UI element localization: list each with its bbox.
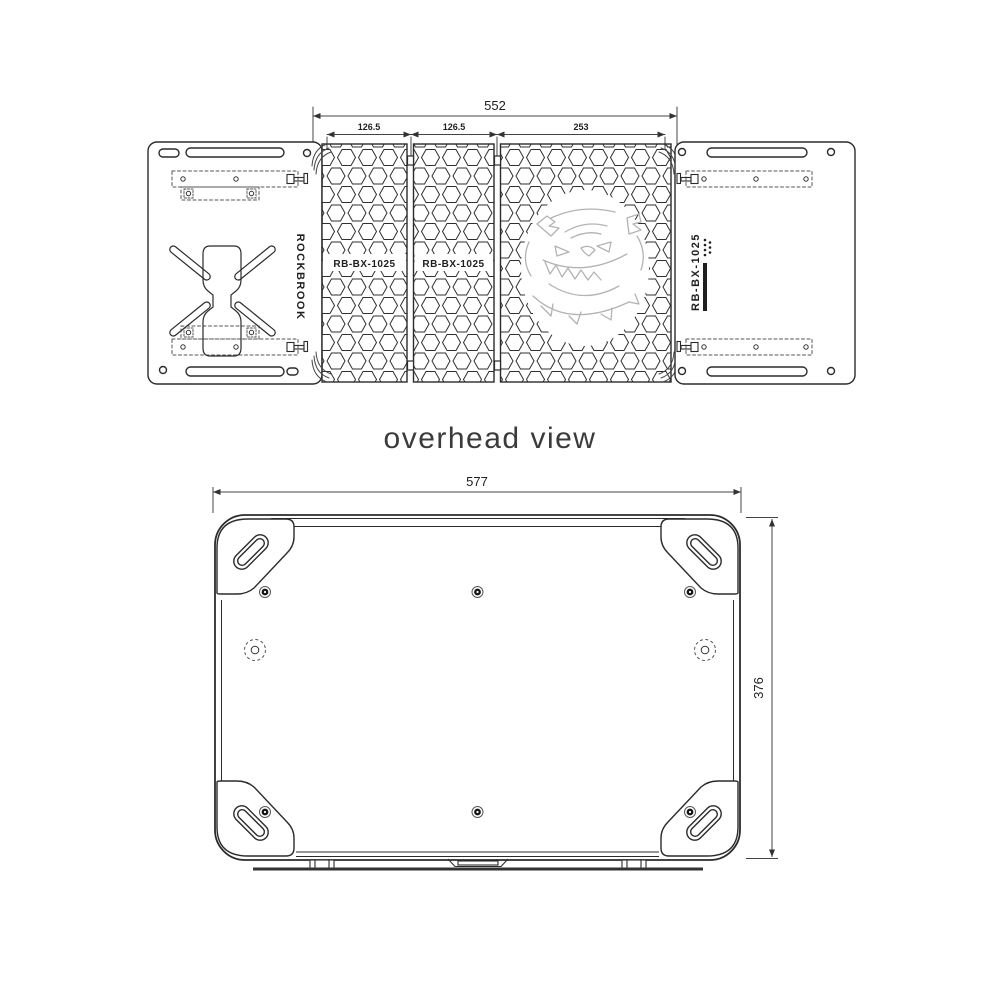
dim-height-376: 376 [751,677,766,699]
left-wing-panel: ROCKBROOK [148,142,322,384]
dim-seg3: 253 [573,122,588,132]
dim-seg2: 126.5 [443,122,466,132]
panel1-model-label: RB-BX-1025 [333,259,395,270]
dim-seg1: 126.5 [358,122,381,132]
panel2-model-label: RB-BX-1025 [422,259,484,270]
slat-panels: RB-BX-1025 RB-BX-1025 [312,144,678,382]
right-wing-panel: RB-BX-1025 [675,142,855,384]
bottom-view: 577 376 [213,474,778,871]
top-view: 552 126.5 126.5 253 [148,98,855,384]
dim-total-552: 552 [484,98,506,113]
case-body [215,515,740,860]
brand-label: ROCKBROOK [294,234,306,321]
model-label-vertical: RB-BX-1025 [690,233,702,311]
view-title: overhead view [0,422,980,456]
technical-drawing: 552 126.5 126.5 253 [0,0,1000,1000]
dim-width-577: 577 [466,474,488,489]
bottom-rail [253,859,703,871]
base-bar [253,868,703,871]
drawing-sheet: 552 126.5 126.5 253 [0,0,1000,1000]
